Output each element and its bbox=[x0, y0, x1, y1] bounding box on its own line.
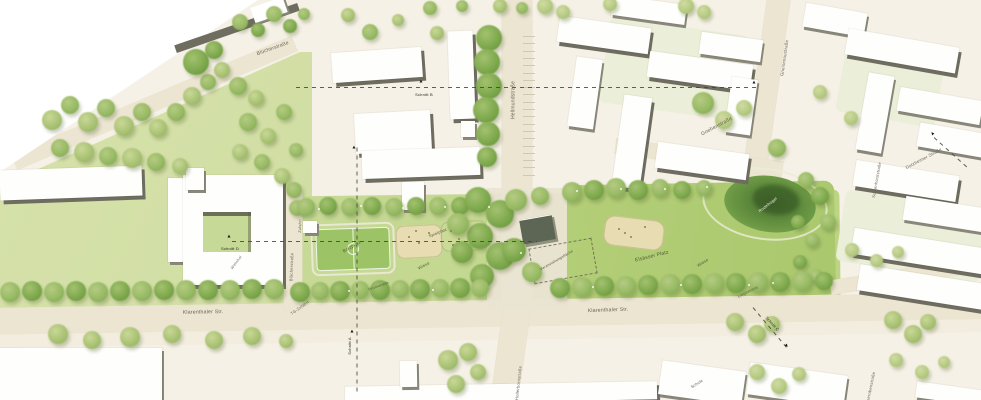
building bbox=[447, 31, 475, 120]
tree bbox=[232, 14, 248, 30]
section-line bbox=[232, 241, 537, 242]
tree bbox=[392, 14, 404, 26]
tree bbox=[815, 272, 833, 290]
tree bbox=[556, 5, 570, 19]
tree bbox=[22, 281, 42, 301]
tree bbox=[83, 331, 101, 349]
tree bbox=[476, 25, 502, 51]
map-label: Schnitt A bbox=[348, 337, 352, 355]
tree bbox=[920, 314, 936, 330]
tree bbox=[254, 154, 270, 170]
tree bbox=[938, 356, 950, 368]
building bbox=[186, 168, 204, 190]
tree bbox=[205, 331, 223, 349]
tree bbox=[88, 282, 108, 302]
parking-tick bbox=[523, 131, 535, 132]
tree bbox=[147, 153, 165, 171]
tree bbox=[407, 197, 425, 215]
tree bbox=[149, 119, 167, 137]
tree bbox=[341, 8, 355, 22]
tree bbox=[239, 113, 257, 131]
tree bbox=[351, 281, 369, 299]
tree bbox=[811, 187, 829, 205]
tree bbox=[260, 128, 276, 144]
tree bbox=[791, 215, 805, 229]
parking-tick bbox=[523, 175, 535, 176]
tree bbox=[110, 281, 130, 301]
tree bbox=[438, 350, 458, 370]
tree bbox=[447, 375, 465, 393]
parking-tick bbox=[523, 160, 535, 161]
tree bbox=[651, 179, 669, 197]
map-label: Klarenthaler Str. bbox=[183, 310, 224, 316]
tree bbox=[362, 24, 378, 40]
tree bbox=[505, 189, 527, 211]
tree bbox=[470, 364, 486, 380]
tree bbox=[844, 111, 858, 125]
tree bbox=[99, 147, 117, 165]
tree bbox=[682, 274, 702, 294]
tree bbox=[154, 280, 174, 300]
parking-tick bbox=[523, 94, 535, 95]
tree bbox=[805, 233, 819, 247]
tree bbox=[232, 144, 248, 160]
tree bbox=[391, 280, 409, 298]
tree bbox=[638, 275, 658, 295]
tree bbox=[283, 19, 297, 33]
parking-tick bbox=[523, 109, 535, 110]
tree bbox=[704, 273, 724, 293]
tree bbox=[477, 147, 497, 167]
tree bbox=[214, 62, 230, 78]
parking-tick bbox=[523, 73, 535, 74]
tree bbox=[220, 280, 240, 300]
map-label: Hellmundstraße bbox=[512, 81, 517, 119]
tree bbox=[248, 90, 264, 106]
parking-tick bbox=[523, 58, 535, 59]
parking-tick bbox=[523, 167, 535, 168]
tree bbox=[562, 182, 582, 202]
tree bbox=[286, 182, 302, 198]
tree bbox=[450, 278, 470, 298]
tree bbox=[410, 279, 430, 299]
tree bbox=[845, 243, 859, 257]
map-label: Schnitt B bbox=[415, 93, 433, 97]
tree bbox=[628, 180, 648, 200]
building bbox=[354, 110, 432, 154]
tree bbox=[474, 49, 500, 75]
tree bbox=[74, 142, 94, 162]
tree bbox=[120, 327, 140, 347]
tree bbox=[696, 180, 712, 196]
building bbox=[0, 166, 142, 201]
tree bbox=[274, 168, 290, 184]
tree bbox=[205, 41, 223, 59]
tree bbox=[471, 279, 489, 297]
section-arrow-icon: ▲ bbox=[227, 235, 232, 240]
building bbox=[400, 361, 417, 387]
tree bbox=[66, 281, 86, 301]
tree bbox=[736, 100, 752, 116]
parking-tick bbox=[523, 102, 535, 103]
tree bbox=[550, 278, 570, 298]
tree bbox=[122, 148, 142, 168]
parking-tick bbox=[523, 51, 535, 52]
tree bbox=[243, 327, 261, 345]
tree bbox=[266, 6, 282, 22]
tree bbox=[78, 112, 98, 132]
section-line bbox=[296, 87, 758, 88]
tree bbox=[51, 139, 69, 157]
tree bbox=[660, 274, 680, 294]
tree bbox=[522, 262, 542, 282]
tree bbox=[606, 178, 626, 198]
building bbox=[362, 147, 481, 179]
tree bbox=[430, 26, 444, 40]
tree bbox=[451, 241, 473, 263]
tree bbox=[330, 281, 350, 301]
building bbox=[303, 221, 317, 233]
section-arrow-icon: ▲ bbox=[419, 80, 424, 85]
tree bbox=[692, 92, 714, 114]
tree bbox=[172, 158, 188, 174]
tree bbox=[476, 122, 500, 146]
tree bbox=[813, 85, 827, 99]
tree bbox=[163, 325, 181, 343]
tree bbox=[183, 87, 201, 105]
section-arrow-icon: ▲ bbox=[350, 330, 355, 335]
tree bbox=[132, 281, 152, 301]
parking-tick bbox=[523, 138, 535, 139]
tree bbox=[915, 365, 929, 379]
parking-tick bbox=[523, 65, 535, 66]
tree bbox=[176, 280, 196, 300]
tree bbox=[870, 254, 883, 267]
tree bbox=[289, 143, 303, 157]
section-arrow-icon: ▲ bbox=[752, 81, 757, 86]
tree bbox=[456, 0, 468, 12]
tree bbox=[889, 353, 903, 367]
tree bbox=[584, 180, 604, 200]
tree bbox=[771, 378, 787, 394]
tree bbox=[768, 139, 786, 157]
tree bbox=[297, 198, 315, 216]
tree bbox=[594, 276, 614, 296]
parking-tick bbox=[523, 43, 535, 44]
tree bbox=[198, 280, 218, 300]
tree bbox=[531, 187, 549, 205]
tree bbox=[200, 74, 216, 90]
tree bbox=[264, 279, 284, 299]
tree bbox=[793, 255, 807, 269]
tree bbox=[0, 282, 20, 302]
parking-tick bbox=[523, 146, 535, 147]
section-line bbox=[357, 148, 358, 392]
tree bbox=[673, 181, 691, 199]
building bbox=[461, 121, 475, 137]
parking-tick bbox=[523, 124, 535, 125]
tree bbox=[298, 8, 310, 20]
tree bbox=[697, 5, 711, 19]
tree bbox=[385, 198, 403, 216]
building bbox=[331, 47, 423, 83]
tree bbox=[97, 99, 115, 117]
tree bbox=[48, 324, 68, 344]
tree bbox=[749, 364, 765, 380]
tree bbox=[476, 73, 502, 99]
tree bbox=[892, 246, 904, 258]
tree bbox=[61, 96, 79, 114]
tree bbox=[904, 325, 922, 343]
tree bbox=[167, 103, 185, 121]
tree bbox=[279, 334, 293, 348]
tree bbox=[748, 325, 766, 343]
tree bbox=[42, 110, 62, 130]
tree bbox=[319, 197, 337, 215]
tree bbox=[516, 2, 528, 14]
tree bbox=[820, 214, 836, 230]
tree bbox=[473, 97, 499, 123]
parking-tick bbox=[523, 116, 535, 117]
building bbox=[168, 178, 184, 262]
parking-tick bbox=[523, 153, 535, 154]
tree bbox=[311, 282, 329, 300]
parking-tick bbox=[523, 36, 535, 37]
tree bbox=[133, 103, 151, 121]
tree bbox=[572, 277, 592, 297]
tree bbox=[423, 1, 437, 15]
tree bbox=[792, 271, 812, 291]
tree bbox=[884, 311, 902, 329]
tree bbox=[276, 104, 292, 120]
tree bbox=[229, 77, 247, 95]
tree bbox=[792, 367, 806, 381]
tree bbox=[798, 172, 814, 188]
parking-tick bbox=[523, 80, 535, 81]
tree bbox=[431, 279, 449, 297]
tree bbox=[114, 116, 134, 136]
tree bbox=[251, 23, 265, 37]
section-arrow-icon: ▲ bbox=[352, 146, 357, 151]
tree bbox=[459, 343, 477, 361]
site-plan: ▲▲▲▲▲▲▲ BlücherstraßeHellmundstraßeGoebe… bbox=[0, 0, 981, 400]
tree bbox=[44, 282, 64, 302]
tree bbox=[616, 276, 636, 296]
tree bbox=[726, 313, 744, 331]
building bbox=[0, 348, 162, 400]
tree bbox=[363, 197, 381, 215]
tree bbox=[242, 279, 262, 299]
map-label: Schnitt D bbox=[221, 247, 239, 251]
map-label: Zufahrt bbox=[299, 219, 303, 233]
